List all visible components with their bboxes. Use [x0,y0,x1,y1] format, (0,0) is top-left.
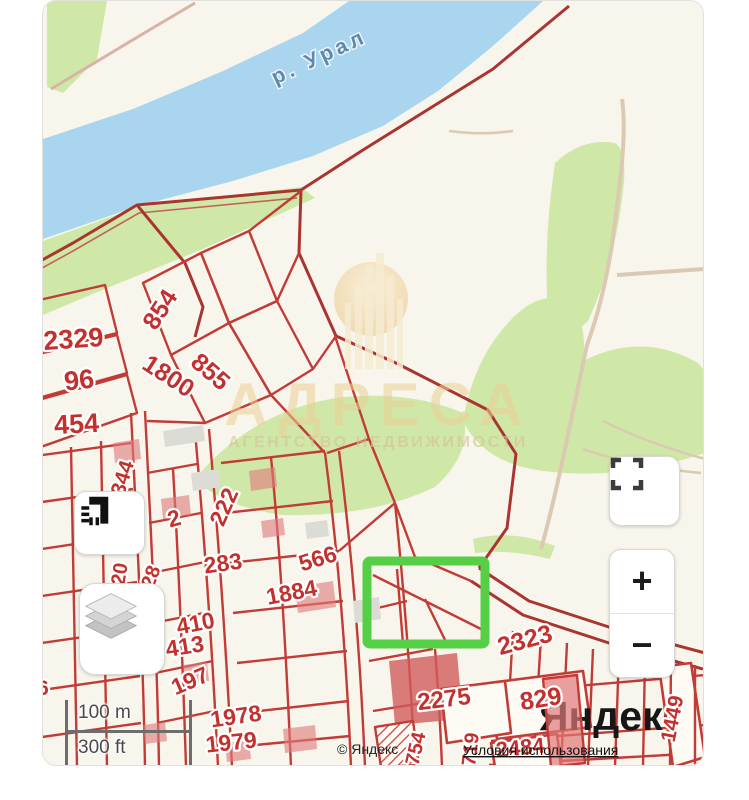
svg-text:454: 454 [53,408,100,440]
svg-text:283: 283 [202,548,244,579]
fullscreen-icon [610,457,644,491]
measure-button[interactable] [74,491,145,555]
zoom-control[interactable]: + − [609,549,675,678]
svg-text:1979: 1979 [204,726,258,757]
watermark-subtitle: АГЕНТСТВО НЕДВИЖИМОСТИ [228,434,528,451]
svg-text:96: 96 [63,364,96,397]
terms-of-use-link[interactable]: Условия использования [463,742,618,758]
attribution: © Яндекс Условия использования [337,741,618,758]
ruler-icon [75,492,113,530]
fullscreen-button[interactable] [609,456,680,526]
map-viewport[interactable]: Яндекс АДРЕСА АГЕНТСТВО НЕДВИЖИМОСТИ р. … [42,0,704,766]
svg-text:6: 6 [43,677,49,700]
layers-icon [80,584,142,646]
zoom-out-button[interactable]: − [610,614,674,678]
zoom-in-button[interactable]: + [610,550,674,614]
attribution-copyright: © Яндекс [337,741,398,757]
layers-button[interactable] [79,583,165,675]
svg-text:2329: 2329 [43,322,104,356]
watermark-title: АДРЕСА [224,371,532,438]
